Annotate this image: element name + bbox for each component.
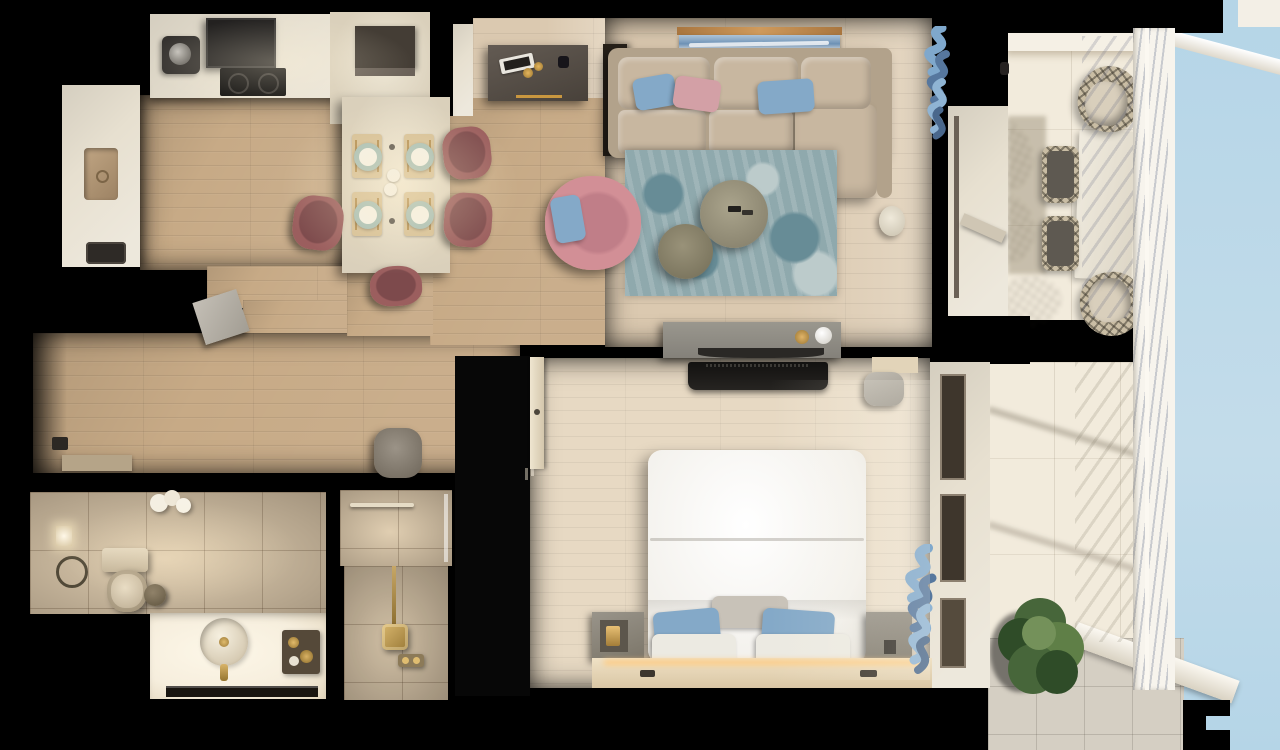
woven-side-chair xyxy=(1042,146,1079,203)
door-handle xyxy=(1000,62,1009,75)
wall-lamp xyxy=(56,526,72,546)
foliage xyxy=(1036,650,1078,694)
dinner-plate xyxy=(354,143,382,171)
railing-post xyxy=(1145,28,1149,690)
throw-pillow-pink xyxy=(672,75,722,113)
floor-plan-stage xyxy=(0,0,1280,750)
half-wall-pillar xyxy=(453,24,473,116)
remote xyxy=(728,206,741,212)
outdoor-table-shadow xyxy=(1008,116,1046,274)
wall-art-frame xyxy=(677,27,842,35)
sideboard-gold-trim xyxy=(516,95,562,98)
side-table-round xyxy=(879,206,905,236)
roof-corner-white xyxy=(1238,0,1280,27)
armchair-pillow-blue xyxy=(549,194,587,245)
hallway-entry-shade xyxy=(33,333,67,473)
tv-vents xyxy=(706,364,810,367)
bench-item xyxy=(640,670,655,677)
amenity-bottle-white xyxy=(289,656,299,666)
toilet-tank xyxy=(102,548,148,572)
pendant-light xyxy=(150,490,198,522)
appliance-front-face xyxy=(355,68,415,76)
window-frame xyxy=(940,374,966,480)
sofa-armrest-right xyxy=(877,48,892,198)
door-handle xyxy=(534,409,540,415)
foliage xyxy=(1022,616,1056,650)
shower-pipe xyxy=(392,566,396,628)
gold-cup xyxy=(534,62,543,71)
dinner-plate xyxy=(406,201,434,229)
dining-chair xyxy=(440,125,493,182)
salt-cellar xyxy=(389,144,395,150)
sofa-seat-cushion xyxy=(618,110,706,154)
amenity-bottle-gold xyxy=(300,650,313,663)
decor-bowl-gold xyxy=(795,330,809,344)
toaster xyxy=(86,242,126,264)
decor-bottle xyxy=(558,56,569,68)
outdoor-dining-table xyxy=(1074,130,1136,280)
open-door-leaf xyxy=(960,213,1007,243)
vanity-mirror-edge xyxy=(166,686,318,697)
railing-outer-post xyxy=(1168,28,1175,690)
range-hood xyxy=(206,18,276,68)
pink-armchair xyxy=(545,176,641,270)
hall-pouf xyxy=(374,428,422,478)
soundbar xyxy=(698,348,824,358)
brass-faucet xyxy=(220,664,228,681)
tv-console xyxy=(663,322,841,358)
bedroom-bench xyxy=(592,658,932,688)
kitchen-hall-junction xyxy=(243,300,348,336)
cooktop xyxy=(220,68,286,96)
coffee-machine-top-disc xyxy=(169,43,191,65)
bedroom-door-leaf xyxy=(530,357,544,469)
blue-curtain-graphic xyxy=(912,26,960,144)
serving-cup xyxy=(387,169,400,182)
decor-sphere xyxy=(815,327,832,344)
remote xyxy=(742,210,753,215)
basin-drain-gold xyxy=(219,637,229,647)
towel-ring xyxy=(56,556,88,588)
brass-shower-head xyxy=(382,624,408,650)
island-appliance-box xyxy=(355,26,415,68)
curtain-bedroom xyxy=(884,544,950,678)
chair-seat-cushion xyxy=(1047,221,1074,266)
dining-table xyxy=(342,97,450,273)
coffee-table-small xyxy=(658,224,713,279)
lounge-cushion xyxy=(1082,79,1130,128)
bench-item xyxy=(860,670,877,677)
door-stop-item xyxy=(52,437,68,450)
bench-led-glow xyxy=(604,660,922,665)
undermount-sink xyxy=(84,148,118,200)
wall-black-stub-balcony xyxy=(930,316,1030,364)
woven-side-chair xyxy=(1042,216,1079,271)
tv xyxy=(688,362,828,390)
shower-controls xyxy=(398,654,424,667)
salt-cellar xyxy=(389,218,395,224)
balcony-railing xyxy=(1133,28,1175,690)
duvet-seam xyxy=(650,538,864,541)
hallway-floor xyxy=(33,333,520,473)
shower-upper-tiles xyxy=(340,490,452,566)
pendant-globe xyxy=(176,498,191,513)
dinner-plate xyxy=(354,201,382,229)
coffee-table-large xyxy=(700,180,768,248)
blue-curtain-graphic xyxy=(884,544,950,678)
building-step-notch xyxy=(1206,716,1230,730)
amenity-tray xyxy=(282,630,320,674)
round-basin xyxy=(200,618,248,666)
control-knob xyxy=(413,657,420,664)
dinner-plate xyxy=(406,143,434,171)
balcony-plant xyxy=(996,596,1092,704)
nightstand-lamp-gold xyxy=(606,626,620,646)
amenity-bottle-gold xyxy=(288,637,299,648)
burner xyxy=(228,73,249,94)
sink-drain xyxy=(96,170,109,183)
entry-threshold xyxy=(62,455,132,471)
control-knob xyxy=(402,657,409,664)
nightstand-left xyxy=(592,612,644,660)
wardrobe xyxy=(455,356,530,696)
throw-pillow-blue xyxy=(757,78,815,115)
gold-cup xyxy=(523,68,533,78)
art-wave-foam xyxy=(689,41,829,47)
towel-rail xyxy=(350,503,414,507)
dining-chair xyxy=(369,265,423,308)
coffee-machine xyxy=(162,36,200,74)
burner xyxy=(258,73,279,94)
threshold-mat xyxy=(872,357,918,373)
basket xyxy=(864,372,904,406)
dining-chair xyxy=(442,191,494,248)
waste-bin xyxy=(144,584,166,606)
sofa-seat-cushion xyxy=(709,110,793,154)
curtain-living xyxy=(912,26,960,144)
chair-seat-cushion xyxy=(1047,151,1074,198)
lounge-cushion xyxy=(1086,276,1132,324)
toilet-bowl xyxy=(107,570,147,612)
shower-glass-edge xyxy=(444,494,448,562)
wardrobe-interior-mark xyxy=(525,468,528,480)
serving-cup xyxy=(384,183,397,196)
